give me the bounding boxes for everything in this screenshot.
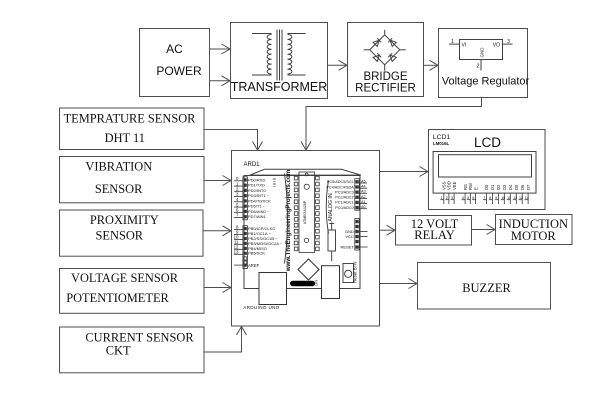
svg-text:LCD: LCD bbox=[474, 135, 501, 150]
svg-text:SENSOR: SENSOR bbox=[95, 182, 143, 196]
svg-text:BRIDGE: BRIDGE bbox=[363, 71, 407, 83]
svg-text:6: 6 bbox=[472, 196, 474, 200]
svg-text:A4: A4 bbox=[361, 185, 366, 189]
svg-text:VIBRATION: VIBRATION bbox=[85, 160, 152, 174]
svg-text:LCD1: LCD1 bbox=[433, 134, 451, 141]
svg-text:PC2/ADC2: PC2/ADC2 bbox=[335, 196, 354, 200]
svg-text:2: 2 bbox=[446, 196, 448, 200]
svg-text:PC5/ADC5/SCL: PC5/ADC5/SCL bbox=[327, 180, 354, 184]
svg-text:A5: A5 bbox=[361, 179, 366, 183]
svg-text:A0: A0 bbox=[361, 205, 366, 209]
svg-text:7: 7 bbox=[483, 196, 485, 200]
svg-text:PROXIMITY: PROXIMITY bbox=[90, 213, 159, 227]
svg-text:ARD1: ARD1 bbox=[244, 162, 261, 168]
svg-text:DHT 11: DHT 11 bbox=[105, 131, 145, 145]
svg-text:SENSOR: SENSOR bbox=[96, 229, 144, 243]
svg-text:LM016L: LM016L bbox=[433, 141, 450, 146]
svg-text:1: 1 bbox=[441, 196, 443, 200]
svg-text:BUZZER: BUZZER bbox=[462, 281, 511, 295]
svg-text:AC: AC bbox=[166, 42, 183, 56]
svg-text:ARDUINO UNO: ARDUINO UNO bbox=[243, 305, 280, 310]
svg-text:CKT: CKT bbox=[106, 344, 131, 358]
svg-text:VI: VI bbox=[462, 43, 467, 49]
svg-text:14: 14 bbox=[525, 196, 529, 200]
svg-text:PD6/AIN0 ~: PD6/AIN0 ~ bbox=[248, 209, 270, 214]
svg-text:VO: VO bbox=[493, 43, 500, 49]
svg-text:VOLTAGE SENSOR: VOLTAGE SENSOR bbox=[71, 271, 179, 285]
svg-text:TRANSFORMER: TRANSFORMER bbox=[231, 80, 328, 94]
svg-text:MOTOR: MOTOR bbox=[511, 229, 557, 243]
svg-text:POTENTIOMETER: POTENTIOMETER bbox=[66, 291, 169, 305]
svg-text:CURRENT SENSOR: CURRENT SENSOR bbox=[85, 330, 194, 344]
svg-text:D5: D5 bbox=[514, 184, 519, 190]
svg-text:13: 13 bbox=[234, 249, 239, 254]
svg-text:PD2/INT0: PD2/INT0 bbox=[248, 188, 266, 193]
svg-text:D1: D1 bbox=[490, 184, 495, 190]
svg-text:PD4/T0/XCK: PD4/T0/XCK bbox=[248, 198, 271, 203]
svg-text:3: 3 bbox=[507, 39, 510, 45]
svg-text:POWER: POWER bbox=[156, 64, 202, 78]
svg-text:☰: ☰ bbox=[273, 183, 277, 188]
svg-text:13: 13 bbox=[519, 196, 523, 200]
svg-text:11: 11 bbox=[507, 196, 511, 200]
svg-text:12: 12 bbox=[513, 196, 517, 200]
svg-text:Reset BTN: Reset BTN bbox=[353, 262, 358, 283]
svg-text:ANALOG IN: ANALOG IN bbox=[328, 193, 334, 222]
svg-text:5: 5 bbox=[467, 196, 469, 200]
svg-text:D4: D4 bbox=[508, 184, 513, 190]
svg-text:AREF: AREF bbox=[248, 263, 260, 268]
svg-text:RELAY: RELAY bbox=[414, 228, 455, 242]
svg-text:RECTIFIER: RECTIFIER bbox=[355, 83, 416, 95]
svg-text:9: 9 bbox=[495, 196, 497, 200]
svg-text:RESET: RESET bbox=[340, 245, 354, 250]
svg-text:PC1/ADC1: PC1/ADC1 bbox=[335, 201, 354, 205]
svg-text:10: 10 bbox=[501, 196, 505, 200]
svg-text:A2: A2 bbox=[361, 195, 366, 199]
svg-text:GND: GND bbox=[480, 47, 485, 58]
svg-text:PC3/ADC3: PC3/ADC3 bbox=[335, 190, 354, 194]
svg-text:3: 3 bbox=[451, 196, 453, 200]
svg-text:TEMPRATURE SENSOR: TEMPRATURE SENSOR bbox=[64, 112, 197, 126]
svg-text:A3: A3 bbox=[361, 190, 366, 194]
svg-text:PD7/AIN1: PD7/AIN1 bbox=[248, 214, 267, 219]
svg-text:D3: D3 bbox=[502, 184, 507, 190]
svg-text:PD0/RXD: PD0/RXD bbox=[248, 177, 265, 182]
svg-text:PB5/SCK: PB5/SCK bbox=[248, 251, 265, 256]
svg-text:VEE: VEE bbox=[452, 181, 457, 190]
svg-text:4: 4 bbox=[462, 196, 464, 200]
svg-text:ATMEGA328P: ATMEGA328P bbox=[303, 200, 307, 224]
svg-text:Voltage Regulator: Voltage Regulator bbox=[442, 76, 530, 88]
svg-text:RW: RW bbox=[468, 183, 473, 190]
svg-text:VCC: VCC bbox=[345, 234, 354, 239]
svg-text:8: 8 bbox=[489, 196, 491, 200]
svg-text:1: 1 bbox=[451, 39, 454, 45]
svg-text:D6: D6 bbox=[520, 184, 525, 190]
svg-text:D0: D0 bbox=[484, 184, 489, 190]
svg-text:D2: D2 bbox=[496, 184, 501, 190]
svg-text:PC0/ADC0: PC0/ADC0 bbox=[335, 206, 354, 210]
svg-text:ON: ON bbox=[314, 280, 319, 286]
svg-text:D7: D7 bbox=[526, 184, 531, 190]
svg-text:2: 2 bbox=[477, 64, 480, 70]
svg-text:E: E bbox=[473, 187, 478, 190]
svg-text:PC4/ADC4/SDA: PC4/ADC4/SDA bbox=[326, 185, 354, 189]
svg-text:A1: A1 bbox=[361, 200, 366, 204]
